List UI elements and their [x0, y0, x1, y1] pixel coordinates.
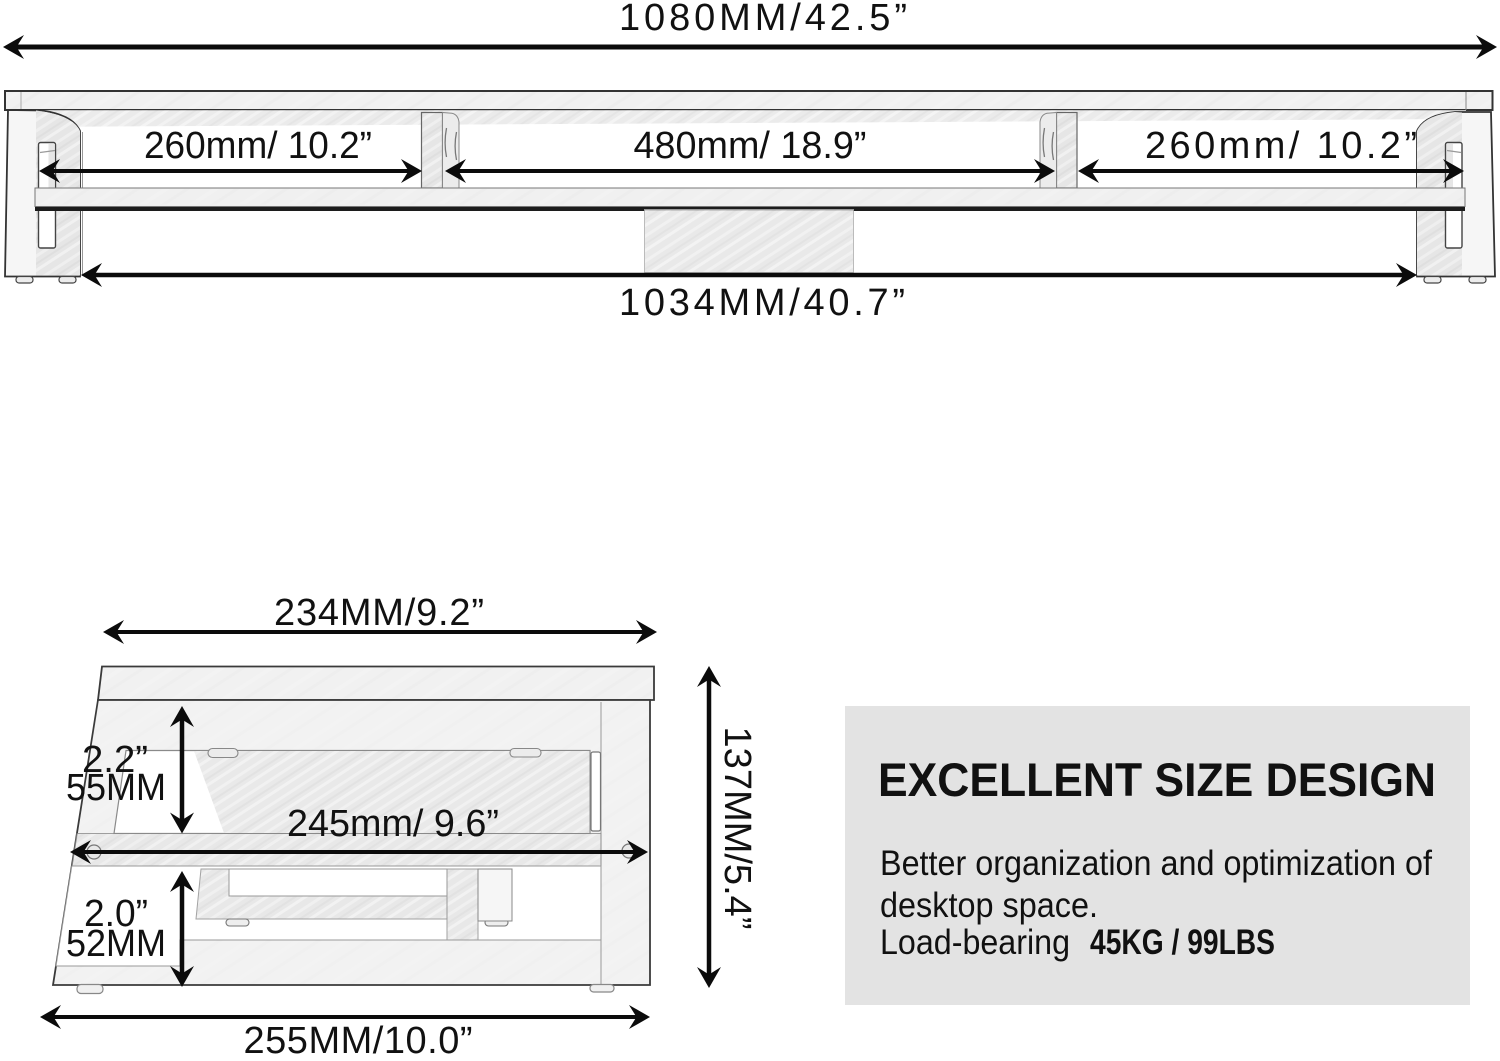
svg-text:45KG / 99LBS: 45KG / 99LBS	[1090, 923, 1275, 962]
svg-text:255MM/10.0”: 255MM/10.0”	[244, 1020, 473, 1061]
svg-text:234MM/9.2”: 234MM/9.2”	[274, 592, 484, 634]
svg-text:52MM: 52MM	[66, 923, 166, 965]
svg-text:245mm/ 9.6”: 245mm/ 9.6”	[287, 803, 499, 845]
svg-text:55MM: 55MM	[66, 767, 166, 809]
svg-text:EXCELLENT SIZE DESIGN: EXCELLENT SIZE DESIGN	[878, 753, 1436, 806]
svg-text:Load-bearing: Load-bearing	[880, 923, 1070, 962]
svg-text:137MM/5.4”: 137MM/5.4”	[716, 727, 758, 930]
svg-text:Better organization and optimi: Better organization and optimization of	[880, 844, 1432, 883]
svg-text:260mm/ 10.2”: 260mm/ 10.2”	[1145, 125, 1417, 167]
svg-text:1034MM/40.7”: 1034MM/40.7”	[619, 282, 905, 324]
svg-text:desktop space.: desktop space.	[880, 886, 1098, 925]
svg-text:1080MM/42.5”: 1080MM/42.5”	[619, 0, 907, 39]
svg-text:260mm/ 10.2”: 260mm/ 10.2”	[144, 125, 372, 167]
svg-text:480mm/ 18.9”: 480mm/ 18.9”	[634, 125, 867, 167]
